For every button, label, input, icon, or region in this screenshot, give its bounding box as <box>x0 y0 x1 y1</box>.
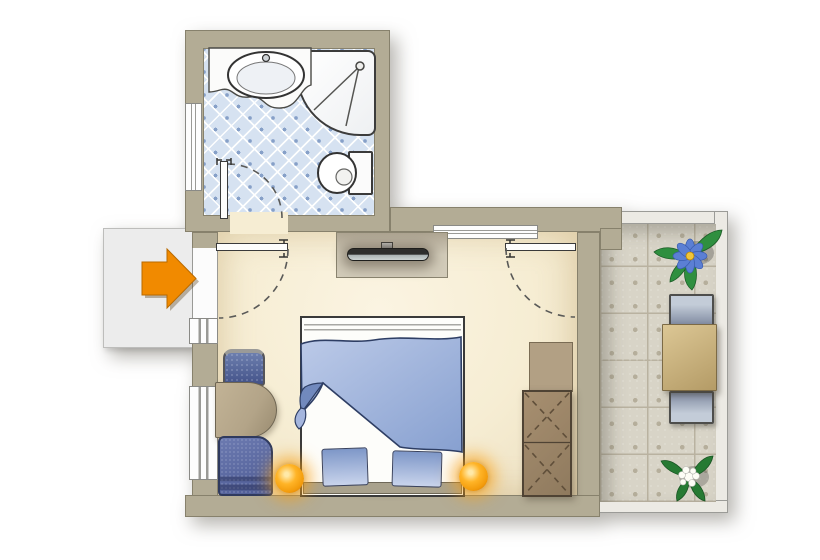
terrace-table <box>662 324 717 391</box>
terrace-railing-top <box>620 211 728 224</box>
pillow-right <box>392 450 443 487</box>
entrance-door-leaf <box>216 243 288 251</box>
bathroom-window <box>185 103 202 191</box>
window-top <box>433 225 538 239</box>
terrace-chair-bottom <box>669 391 714 424</box>
right-wall <box>577 232 600 515</box>
bedside-lamp-left <box>275 464 304 493</box>
entrance-hallway <box>103 228 193 348</box>
terrace-chair-top <box>669 294 714 327</box>
apartment-outline <box>0 0 820 560</box>
flat-tv <box>347 248 429 261</box>
bathroom-doorway <box>230 212 288 234</box>
bedside-lamp-right <box>459 462 488 491</box>
window-left-small <box>189 318 218 344</box>
entrance-doorway <box>192 248 218 320</box>
wall-step <box>600 228 622 250</box>
wardrobe <box>522 390 572 497</box>
cabinet <box>529 342 573 392</box>
floor-plan <box>0 0 820 560</box>
desk <box>215 382 277 438</box>
window-left-large <box>189 386 218 480</box>
terrace-door-leaf <box>505 243 576 251</box>
bed-sheet-lines <box>304 321 461 333</box>
armchair <box>218 436 273 496</box>
desk-chair <box>223 349 265 386</box>
bathroom-door-leaf <box>220 161 228 219</box>
toilet-tank <box>348 151 373 195</box>
pillow-left <box>321 447 368 487</box>
